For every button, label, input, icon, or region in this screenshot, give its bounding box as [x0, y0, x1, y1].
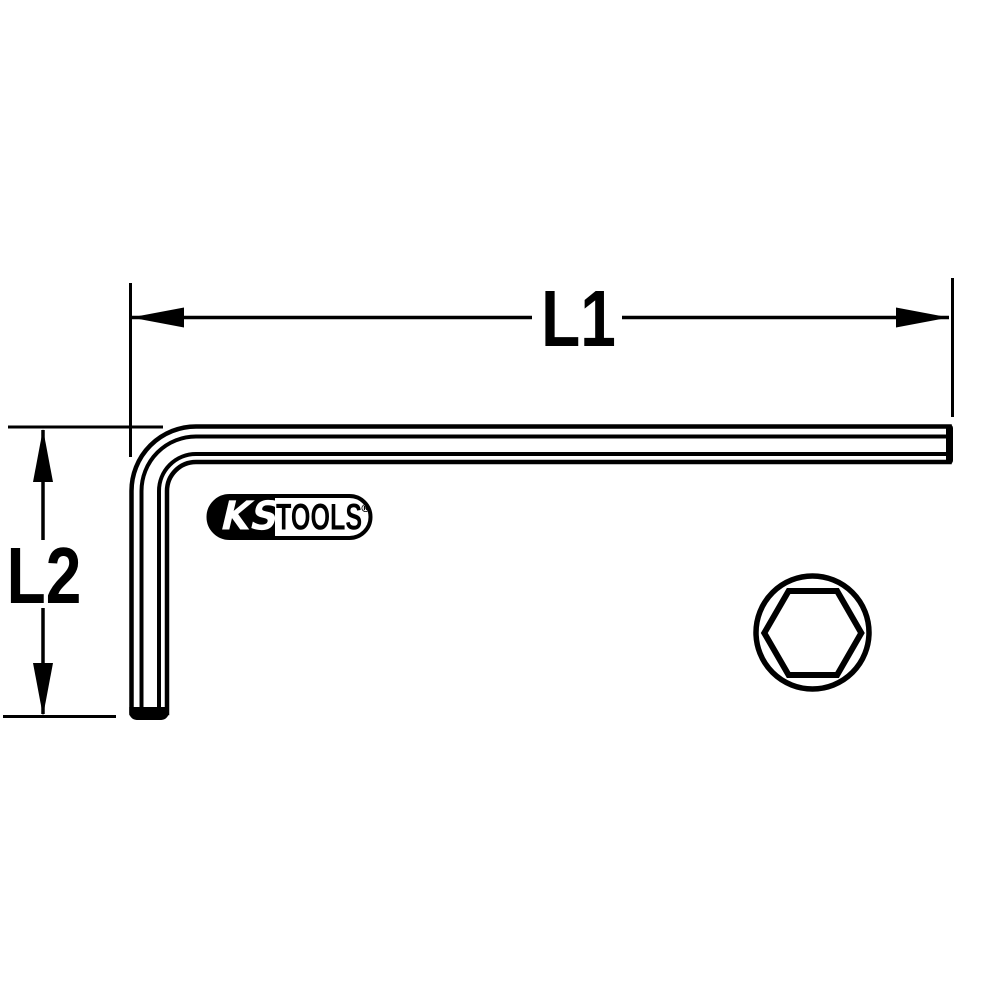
hex-cross-section: [756, 576, 869, 689]
l2-arrow-up-icon: [33, 429, 53, 482]
logo-tools-text: TOOLS: [276, 496, 362, 538]
l2-arrow-down-icon: [33, 663, 53, 716]
hex-key-tip-cap-bottom: [129, 707, 168, 720]
logo-registered-mark: ®: [360, 502, 371, 515]
l1-label: L1: [541, 274, 616, 363]
l1-arrow-right-icon: [896, 308, 949, 328]
l2-label: L2: [7, 531, 82, 620]
brand-logo: KS TOOLS ®: [209, 493, 372, 539]
drawing-canvas: L1 L2 KS TOOL: [0, 0, 1000, 1000]
logo-ks-text: KS: [216, 493, 284, 539]
l1-arrow-left-icon: [131, 308, 184, 328]
hex-key-technical-drawing: L1 L2 KS TOOL: [0, 0, 1000, 1000]
hex-key-end-cap-right: [946, 425, 953, 465]
hex-key-outline: [132, 427, 950, 714]
hex-key-facet-line-upper: [142, 437, 949, 712]
cross-section-hexagon-icon: [764, 591, 861, 675]
